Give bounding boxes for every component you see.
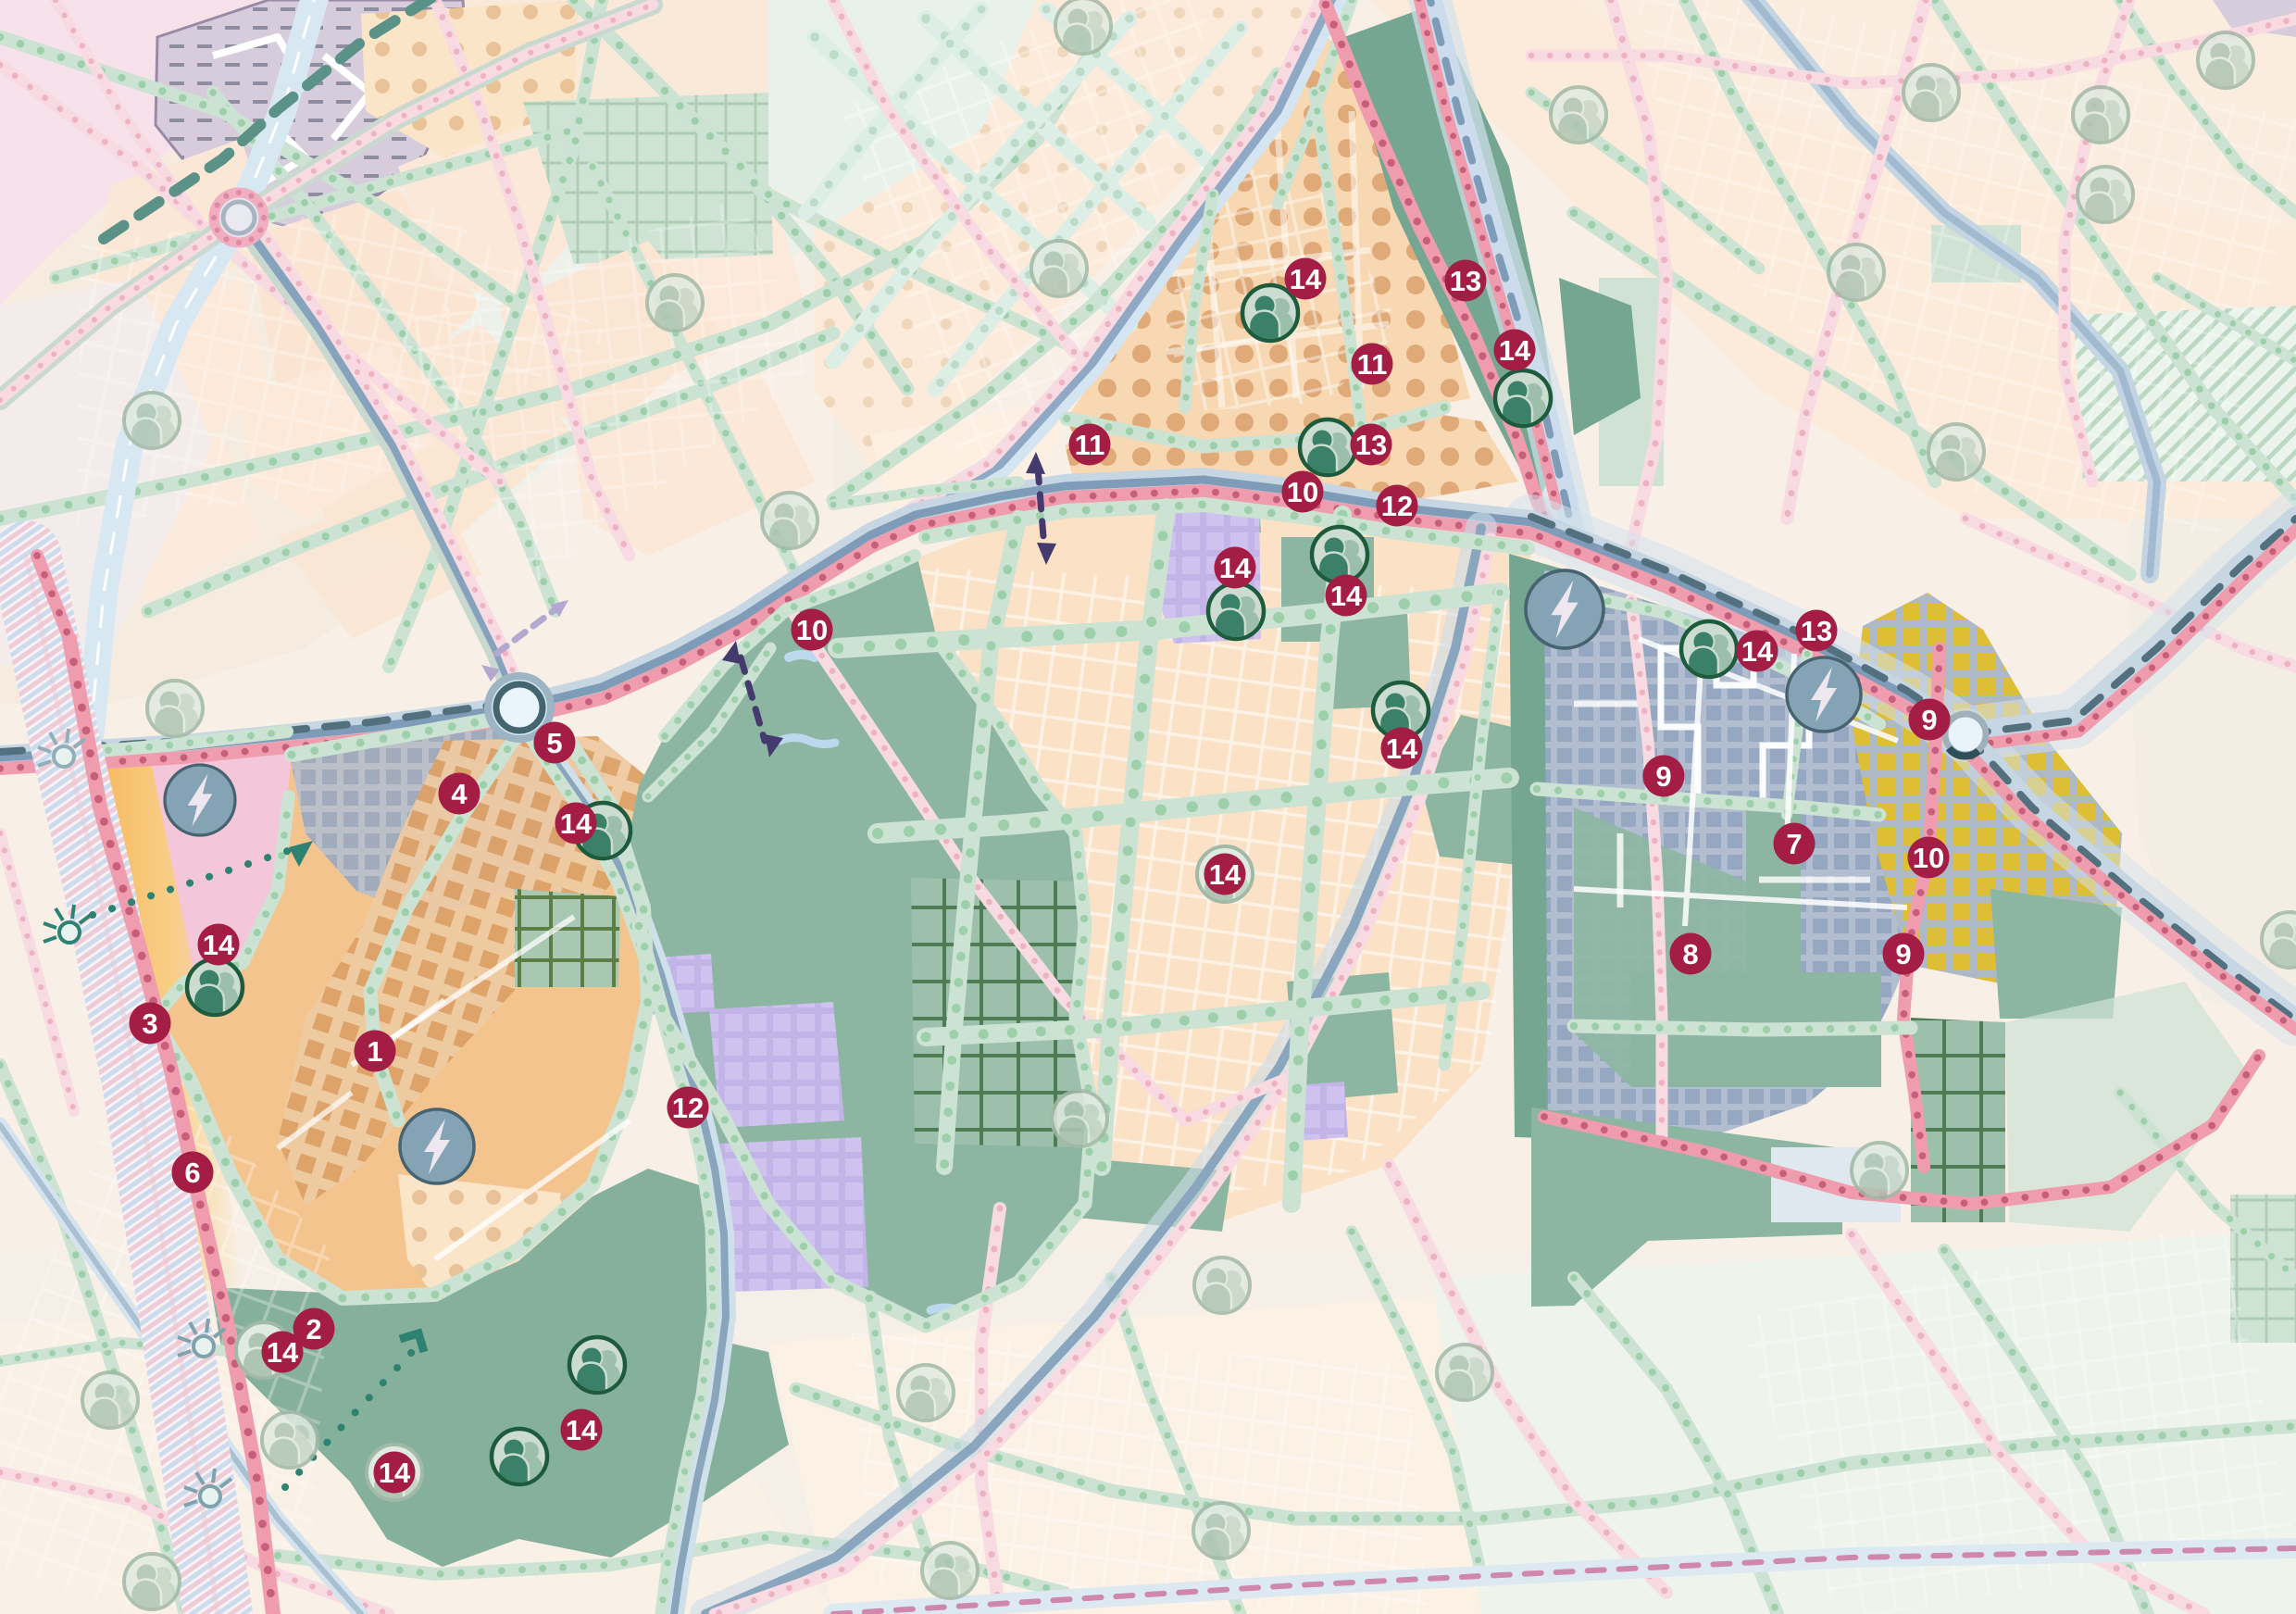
svg-text:10: 10	[796, 614, 828, 646]
svg-text:14: 14	[379, 1457, 411, 1489]
svg-text:9: 9	[1895, 938, 1911, 970]
svg-text:14: 14	[1499, 334, 1531, 367]
svg-text:14: 14	[267, 1336, 299, 1369]
svg-text:14: 14	[566, 1414, 598, 1446]
svg-text:1: 1	[367, 1035, 382, 1068]
svg-text:9: 9	[1921, 704, 1937, 736]
svg-text:12: 12	[672, 1092, 704, 1124]
svg-text:4: 4	[451, 778, 468, 810]
svg-text:13: 13	[1801, 615, 1832, 647]
svg-text:7: 7	[1786, 828, 1802, 860]
svg-text:10: 10	[1287, 476, 1318, 508]
svg-text:14: 14	[1386, 732, 1418, 765]
svg-text:14: 14	[1219, 552, 1252, 584]
svg-text:13: 13	[1450, 265, 1481, 297]
svg-text:11: 11	[1357, 348, 1388, 381]
svg-text:14: 14	[1741, 635, 1774, 668]
svg-text:8: 8	[1682, 938, 1698, 970]
svg-text:12: 12	[1381, 490, 1413, 522]
svg-text:5: 5	[546, 727, 562, 759]
svg-text:14: 14	[1209, 858, 1242, 891]
svg-text:10: 10	[1913, 842, 1944, 874]
svg-text:6: 6	[184, 1157, 200, 1189]
svg-text:11: 11	[1075, 429, 1105, 461]
svg-text:13: 13	[1355, 429, 1387, 461]
svg-text:14: 14	[1290, 263, 1322, 295]
svg-text:14: 14	[203, 929, 235, 961]
svg-text:14: 14	[1330, 580, 1363, 612]
svg-text:9: 9	[1655, 760, 1671, 793]
svg-text:2: 2	[306, 1313, 321, 1345]
svg-text:3: 3	[142, 1007, 157, 1040]
svg-text:14: 14	[560, 807, 593, 840]
